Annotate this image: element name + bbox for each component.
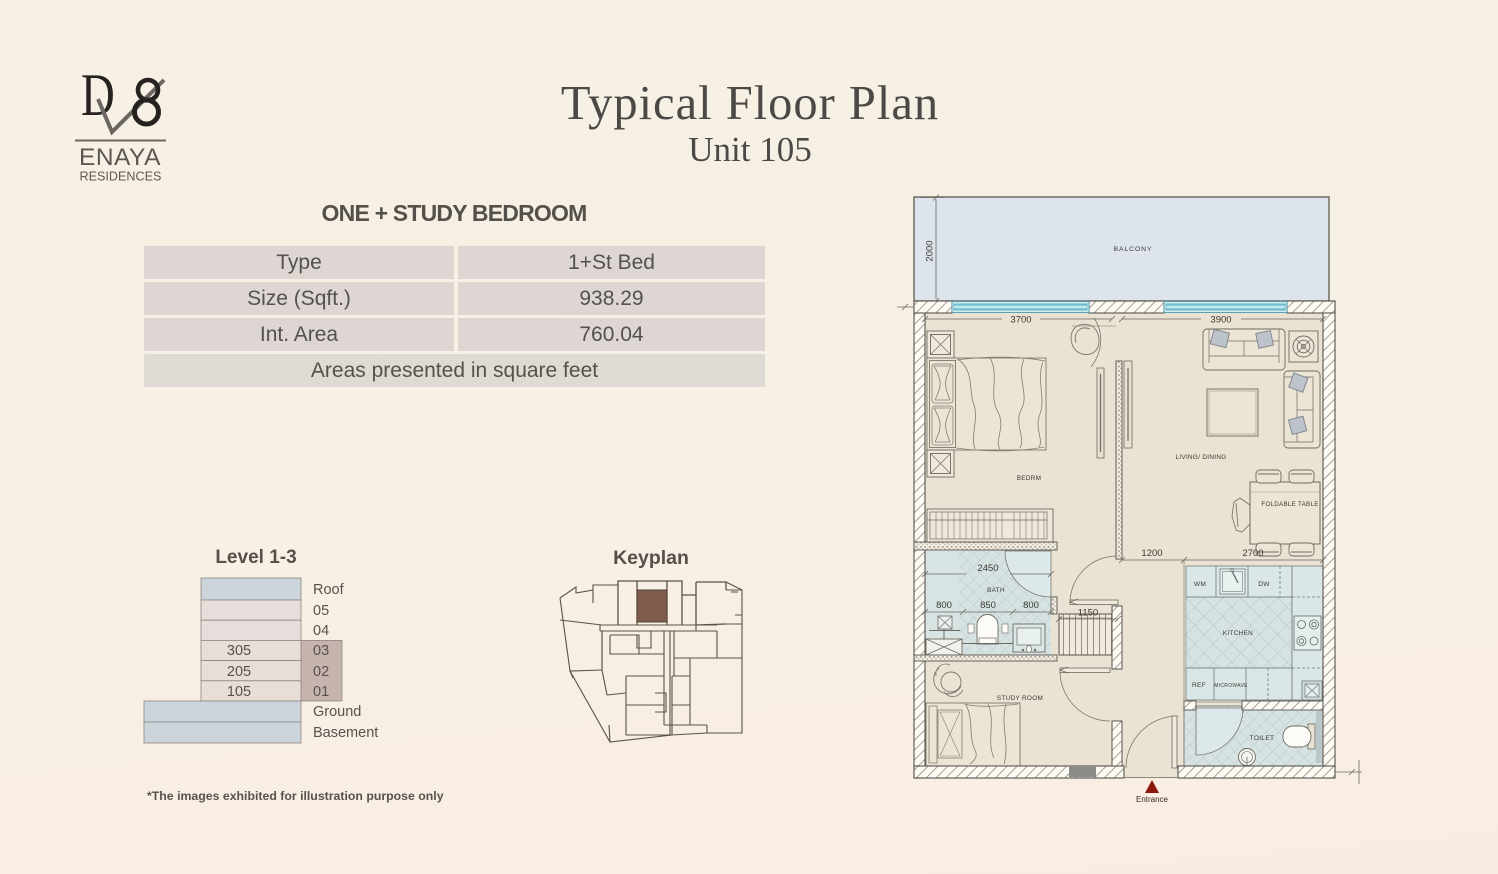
svg-text:BALCONY: BALCONY [1114,246,1153,253]
svg-text:WM: WM [1194,581,1206,588]
svg-text:RESIDENCES: RESIDENCES [80,170,162,184]
svg-text:800: 800 [936,600,952,611]
svg-text:DW: DW [1258,581,1270,588]
svg-text:BEDRM: BEDRM [1017,475,1042,482]
svg-text:LIVING/ DINING: LIVING/ DINING [1175,454,1226,461]
svg-text:D: D [81,68,115,128]
svg-text:2000: 2000 [925,240,936,261]
svg-text:Basement: Basement [313,725,378,741]
svg-text:TOILET: TOILET [1250,735,1275,742]
svg-text:ENAYA: ENAYA [79,144,161,171]
svg-text:Ground: Ground [313,704,361,720]
svg-text:305: 305 [227,643,251,659]
svg-text:Roof: Roof [313,582,345,598]
svg-text:BATH: BATH [987,587,1005,594]
svg-text:1200: 1200 [1141,548,1162,559]
svg-text:03: 03 [313,643,329,659]
svg-text:3900: 3900 [1210,315,1231,326]
svg-text:STUDY ROOM: STUDY ROOM [997,695,1043,702]
svg-text:1150: 1150 [1078,608,1098,619]
svg-text:05: 05 [313,603,329,619]
svg-text:105: 105 [227,684,251,700]
svg-text:850: 850 [980,600,996,611]
svg-text:04: 04 [313,623,329,639]
svg-text:3700: 3700 [1010,315,1031,326]
svg-text:Entrance: Entrance [1136,795,1169,804]
svg-text:02: 02 [313,664,329,680]
svg-text:01: 01 [313,684,329,700]
svg-text:205: 205 [227,664,251,680]
svg-text:2700: 2700 [1242,548,1263,559]
svg-text:REF: REF [1192,682,1206,689]
svg-text:KITCHEN: KITCHEN [1223,630,1253,637]
svg-text:2450: 2450 [977,563,998,574]
svg-text:MICROWAVE: MICROWAVE [1214,683,1248,689]
svg-text:800: 800 [1023,600,1039,611]
svg-text:FOLDABLE TABLE: FOLDABLE TABLE [1261,501,1318,508]
